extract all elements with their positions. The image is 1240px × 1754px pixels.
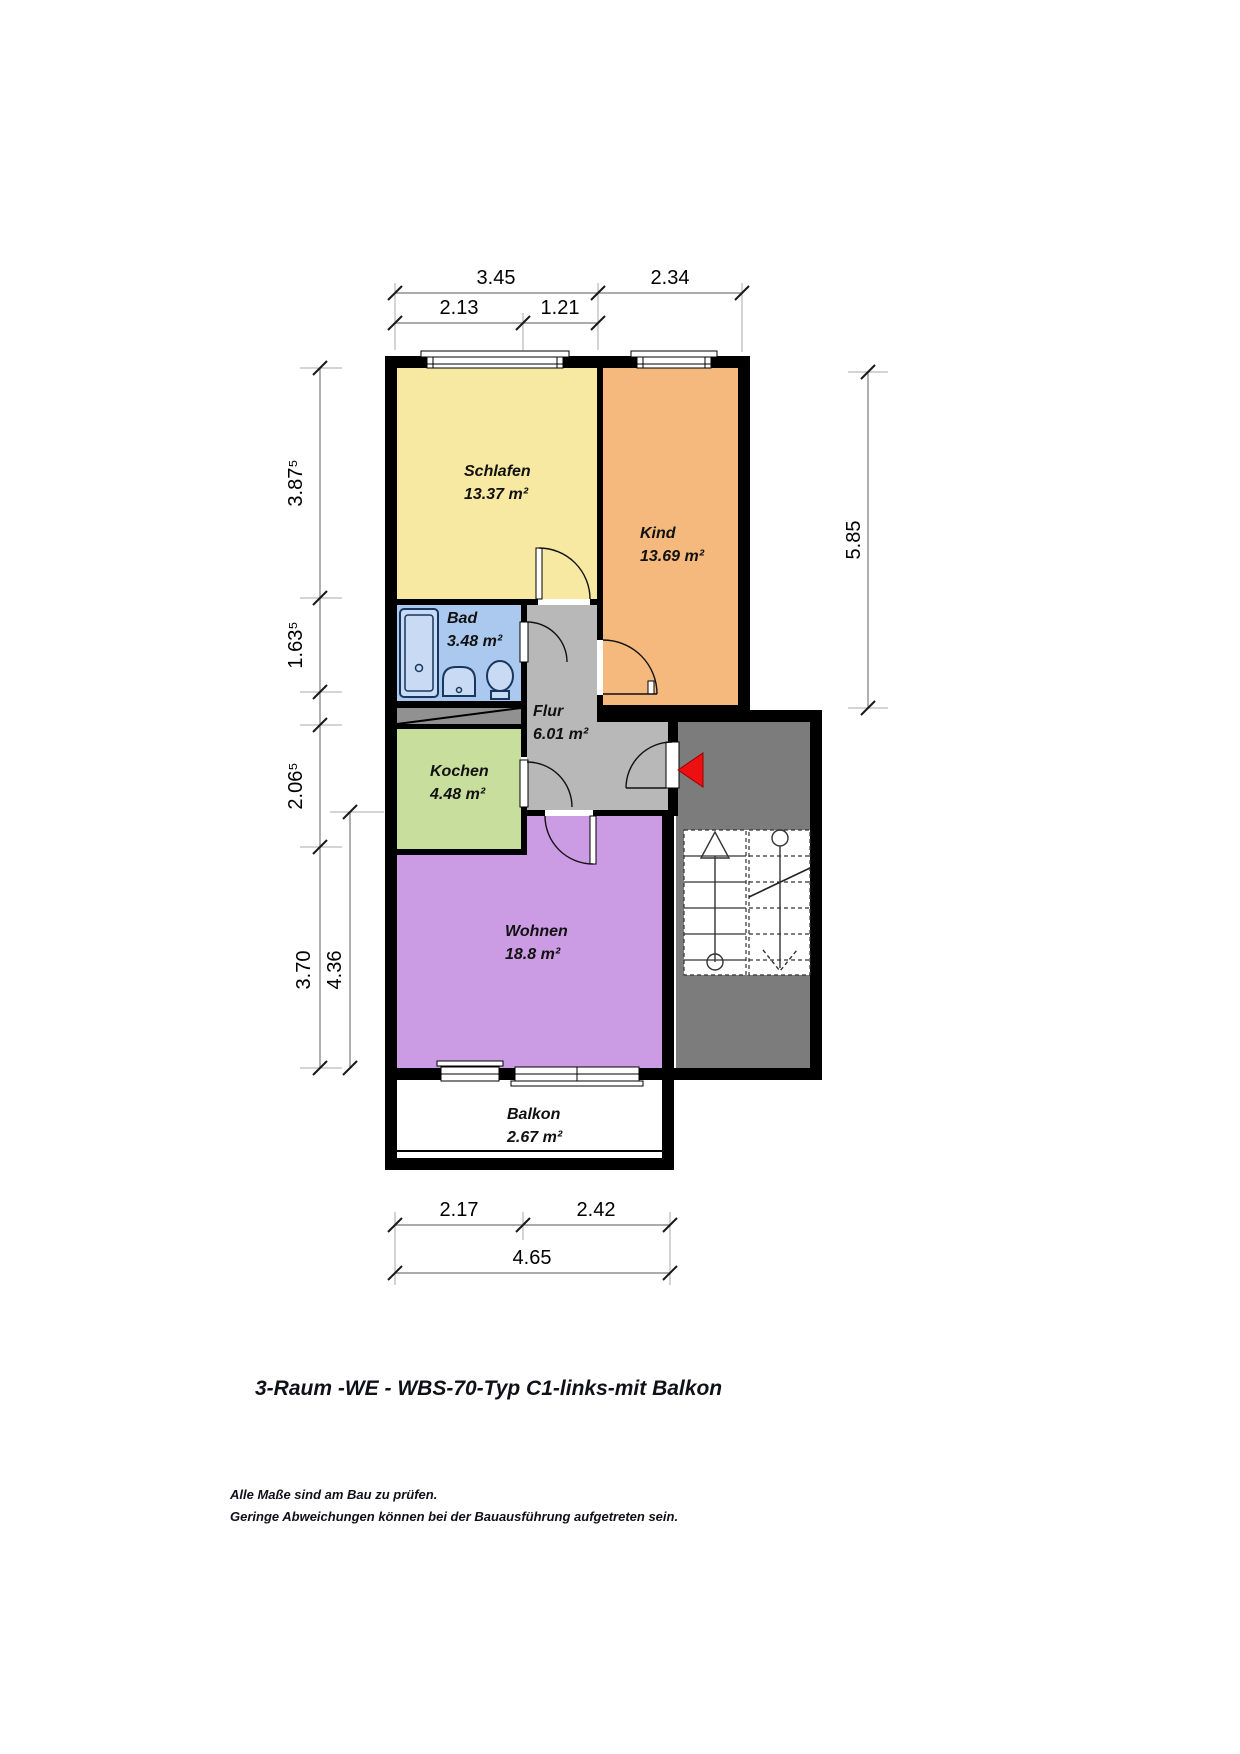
room-name: Schlafen xyxy=(464,460,531,483)
wall xyxy=(521,662,527,757)
wall xyxy=(597,705,750,722)
wall xyxy=(738,356,750,722)
room-area: 6.01 m² xyxy=(533,723,588,746)
dim-left-3875: 3.87⁵ xyxy=(285,418,309,548)
label-kind: Kind 13.69 m² xyxy=(640,522,704,568)
room-name: Kochen xyxy=(430,760,489,783)
dim-left-2065: 2.06⁵ xyxy=(285,721,309,851)
dim-bottom-465: 4.65 xyxy=(472,1247,592,1271)
wall xyxy=(385,1080,397,1170)
label-kochen: Kochen 4.48 m² xyxy=(430,760,489,806)
wall xyxy=(668,788,678,810)
dim-top-345: 3.45 xyxy=(436,267,556,291)
wall xyxy=(385,1068,443,1080)
stairwell xyxy=(676,722,810,1068)
plan-notes: Alle Maße sind am Bau zu prüfen. Geringe… xyxy=(230,1484,678,1528)
floor-plan-page: 3.45 2.34 2.13 1.21 3.87⁵ 1.63⁵ 2.06⁵ 3.… xyxy=(0,0,1240,1754)
wall xyxy=(497,1068,517,1080)
wall xyxy=(662,1080,674,1170)
wall xyxy=(590,599,603,605)
room-name: Bad xyxy=(447,607,502,630)
dim-top-121: 1.21 xyxy=(500,297,620,321)
wall xyxy=(521,599,527,623)
dim-top-234: 2.34 xyxy=(610,267,730,291)
room-area: 2.67 m² xyxy=(507,1126,562,1149)
room-name: Wohnen xyxy=(505,920,568,943)
wall xyxy=(810,710,822,1080)
room-area: 3.48 m² xyxy=(447,630,502,653)
wall xyxy=(397,849,527,855)
label-schlafen: Schlafen 13.37 m² xyxy=(464,460,531,506)
wall xyxy=(385,356,750,368)
wall xyxy=(397,724,527,729)
dim-bottom-217: 2.17 xyxy=(399,1199,519,1223)
wall xyxy=(662,810,674,1068)
wall xyxy=(637,1068,822,1080)
plan-title: 3-Raum -WE - WBS-70-Typ C1-links-mit Bal… xyxy=(255,1377,722,1401)
room-name: Flur xyxy=(533,700,588,723)
room-name: Kind xyxy=(640,522,704,545)
dim-left-1635: 1.63⁵ xyxy=(285,580,309,710)
wall xyxy=(385,599,538,605)
room-area: 18.8 m² xyxy=(505,943,568,966)
wall xyxy=(397,701,527,708)
dim-right-585: 5.85 xyxy=(843,475,867,605)
room-area: 4.48 m² xyxy=(430,783,489,806)
wall xyxy=(668,722,678,742)
wall xyxy=(385,1158,674,1170)
label-wohnen: Wohnen 18.8 m² xyxy=(505,920,568,966)
wall xyxy=(385,356,397,1080)
label-balkon: Balkon 2.67 m² xyxy=(507,1103,562,1149)
installation-shaft xyxy=(397,708,521,724)
room-area: 13.69 m² xyxy=(640,545,704,568)
room-area: 13.37 m² xyxy=(464,483,531,506)
room-wohnen-upper xyxy=(527,816,662,855)
dim-left-370: 3.70 xyxy=(293,905,317,1035)
dim-bottom-242: 2.42 xyxy=(536,1199,656,1223)
label-bad: Bad 3.48 m² xyxy=(447,607,502,653)
dim-left-436: 4.36 xyxy=(324,905,348,1035)
note-line-1: Alle Maße sind am Bau zu prüfen. xyxy=(230,1484,678,1506)
label-flur: Flur 6.01 m² xyxy=(533,700,588,746)
wall xyxy=(527,810,545,816)
room-name: Balkon xyxy=(507,1103,562,1126)
note-line-2: Geringe Abweichungen können bei der Baua… xyxy=(230,1506,678,1528)
